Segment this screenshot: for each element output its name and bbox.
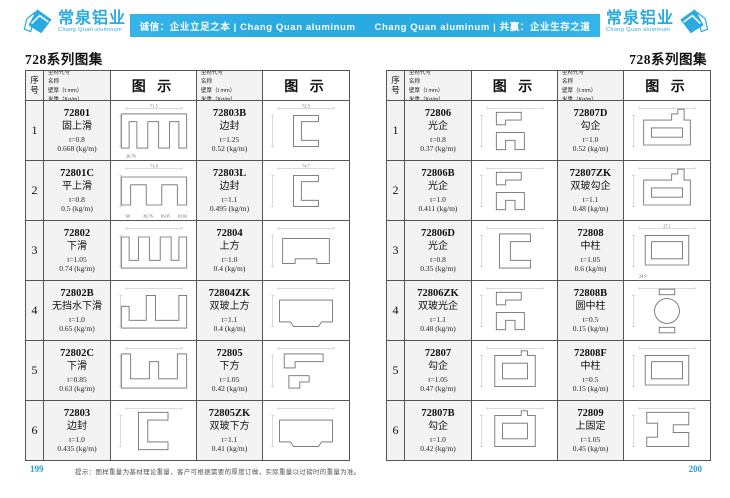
profile-code: 72806D xyxy=(421,227,455,240)
profile-thickness: t=1.0 xyxy=(222,255,238,264)
profile-code: 72802B xyxy=(60,287,93,300)
profile-thickness: t=1.1 xyxy=(222,435,238,444)
profile-thickness: t=0.5 xyxy=(583,315,599,324)
profile-diagram xyxy=(472,101,558,161)
svg-text:60: 60 xyxy=(126,213,130,218)
profile-thickness: t=1.1 xyxy=(222,315,238,324)
profile-code: 72805 xyxy=(216,347,242,360)
profile-spec: 72807ZK双玻勾企t=1.10.48 (kg/m) xyxy=(558,161,624,221)
profile-diagram xyxy=(263,401,350,461)
cross-section-icon: 74.7 xyxy=(266,163,346,219)
profile-diagram xyxy=(111,221,197,281)
profile-weight: 0.15 (kg/m) xyxy=(573,324,608,333)
svg-text:74.7: 74.7 xyxy=(302,163,310,168)
profile-thickness: t=1.1 xyxy=(222,195,238,204)
spec-header-line: 壁厚（t mm） xyxy=(48,86,82,94)
profile-name: 中柱 xyxy=(581,241,601,254)
cross-section-icon xyxy=(475,403,555,459)
profile-weight: 0.37 (kg/m) xyxy=(420,144,455,153)
profile-spec: 72808F中柱t=0.50.15 (kg/m) xyxy=(558,341,624,401)
profile-spec: 72802C下滑t=0.850.63 (kg/m) xyxy=(44,341,111,401)
profile-weight: 0.15 (kg/m) xyxy=(573,384,608,393)
profile-thickness: t=1.0 xyxy=(430,195,446,204)
profile-code: 72807D xyxy=(574,107,608,120)
profile-diagram xyxy=(472,221,558,281)
spec-header-line: 型材代号 xyxy=(48,71,70,76)
profile-weight: 0.65 (kg/m) xyxy=(59,324,94,333)
cross-section-icon xyxy=(266,223,346,279)
page-title-left: 728系列图集 xyxy=(25,48,103,68)
diamond-logo-icon xyxy=(22,6,54,38)
profile-spec: 72806B光企t=1.00.411 (kg/m) xyxy=(405,161,472,221)
cross-section-icon: 71.96026.7616.0510.03 xyxy=(114,163,194,219)
profile-thickness: t=1.0 xyxy=(430,435,446,444)
profile-spec: 72808B圆中柱t=0.50.15 (kg/m) xyxy=(558,281,624,341)
profile-weight: 0.4 (kg/m) xyxy=(214,324,246,333)
footer-note: 提示：图样重量为基材理论重量，客户可根据需要的厚度订做，实际重量以过磅时的重量为… xyxy=(75,466,361,476)
profile-code: 72801 xyxy=(64,107,90,120)
profile-name: 边封 xyxy=(220,121,240,134)
profile-name: 上方 xyxy=(220,241,240,254)
profile-name: 双玻上方 xyxy=(210,301,250,314)
profile-weight: 0.495 (kg/m) xyxy=(210,204,249,213)
profile-spec: 72803L边封t=1.10.495 (kg/m) xyxy=(197,161,263,221)
cross-section-icon xyxy=(627,343,707,399)
profile-code: 72801C xyxy=(60,167,94,180)
profile-weight: 0.4 (kg/m) xyxy=(214,264,246,273)
profile-weight: 0.42 (kg/m) xyxy=(420,444,455,453)
profile-weight: 0.411 (kg/m) xyxy=(419,204,458,213)
profile-name: 双玻下方 xyxy=(210,421,250,434)
profile-name: 无挡水下滑 xyxy=(52,301,102,314)
profile-name: 上固定 xyxy=(576,421,606,434)
svg-text:24.9: 24.9 xyxy=(639,273,646,278)
profile-name: 光企 xyxy=(428,241,448,254)
profile-spec: 72803边封t=1.00.435 (kg/m) xyxy=(44,401,111,461)
profile-diagram: 72.5 xyxy=(263,101,350,161)
cross-section-icon xyxy=(266,283,346,339)
profile-code: 72808 xyxy=(577,227,603,240)
profile-diagram xyxy=(472,281,558,341)
row-seq-number: 6 xyxy=(387,401,405,461)
column-header-figure: 图 示 xyxy=(624,71,711,101)
profile-code: 72809 xyxy=(577,407,603,420)
profile-weight: 0.435 (kg/m) xyxy=(57,444,96,453)
row-seq-number: 5 xyxy=(26,341,44,401)
profile-diagram xyxy=(472,401,558,461)
profile-diagram xyxy=(624,281,711,341)
profile-code: 72803L xyxy=(213,167,246,180)
profile-spec: 72802下滑t=1.050.74 (kg/m) xyxy=(44,221,111,281)
cross-section-icon xyxy=(114,403,194,459)
profile-spec: 72806ZK双玻光企t=1.10.48 (kg/m) xyxy=(405,281,472,341)
profile-code: 72804ZK xyxy=(209,287,250,300)
profile-code: 72802C xyxy=(60,347,94,360)
svg-text:72.5: 72.5 xyxy=(302,103,309,108)
profile-spec: 72805ZK双玻下方t=1.10.41 (kg/m) xyxy=(197,401,263,461)
svg-text:26.76: 26.76 xyxy=(126,153,136,158)
profile-weight: 0.668 (kg/m) xyxy=(57,144,96,153)
svg-text:71.5: 71.5 xyxy=(150,103,157,108)
svg-text:16.05: 16.05 xyxy=(160,213,170,218)
cross-section-icon xyxy=(266,403,346,459)
row-seq-number: 6 xyxy=(26,401,44,461)
profile-spec: 72802B无挡水下滑t=1.00.65 (kg/m) xyxy=(44,281,111,341)
cross-section-icon xyxy=(627,163,707,219)
spec-header-line: 型材代号 xyxy=(201,71,223,76)
column-header-spec: 型材代号 名称 壁厚（t mm） 米重（Kg/m） xyxy=(405,71,472,101)
row-seq-number: 5 xyxy=(387,341,405,401)
profile-name: 下滑 xyxy=(67,241,87,254)
column-header-figure: 图 示 xyxy=(111,71,197,101)
profile-diagram xyxy=(263,341,350,401)
profile-spec: 72807勾企t=1.050.47 (kg/m) xyxy=(405,341,472,401)
profile-code: 72807 xyxy=(425,347,451,360)
column-header-figure: 图 示 xyxy=(472,71,558,101)
company-name-en: Chang Quan aluminum xyxy=(606,28,674,34)
profile-weight: 0.63 (kg/m) xyxy=(59,384,94,393)
profile-thickness: t=1.05 xyxy=(67,255,86,264)
spec-header-line: 壁厚（t mm） xyxy=(409,86,443,94)
spec-header-line: 名称 xyxy=(48,77,59,85)
company-name: 常泉铝业 xyxy=(58,11,126,27)
profile-table-right: 序号 型材代号 名称 壁厚（t mm） 米重（Kg/m） 图 示 型材代号 名称… xyxy=(386,70,711,461)
profile-thickness: t=0.8 xyxy=(69,195,85,204)
row-seq-number: 3 xyxy=(387,221,405,281)
profile-diagram: 71.96026.7616.0510.03 xyxy=(111,161,197,221)
profile-thickness: t=0.8 xyxy=(430,135,446,144)
profile-code: 72807B xyxy=(421,407,454,420)
profile-weight: 0.35 (kg/m) xyxy=(420,264,455,273)
cross-section-icon xyxy=(475,223,555,279)
profile-name: 圆中柱 xyxy=(576,301,606,314)
page-number-left: 199 xyxy=(30,464,44,474)
profile-thickness: t=1.0 xyxy=(69,315,85,324)
cross-section-icon: 27.124.9 xyxy=(627,223,707,279)
profile-diagram xyxy=(111,281,197,341)
banner-slogan-left: 诚信：企业立足之本 | Chang Quan aluminum xyxy=(130,14,365,37)
profile-name: 勾企 xyxy=(428,421,448,434)
spec-header-line: 型材代号 xyxy=(409,71,431,76)
svg-text:10.03: 10.03 xyxy=(177,213,187,218)
svg-text:27.1: 27.1 xyxy=(663,223,670,228)
profile-thickness: t=1.25 xyxy=(220,135,239,144)
profile-name: 中柱 xyxy=(581,361,601,374)
profile-thickness: t=1.05 xyxy=(428,375,447,384)
profile-diagram xyxy=(111,341,197,401)
profile-weight: 0.48 (kg/m) xyxy=(420,324,455,333)
profile-thickness: t=1.1 xyxy=(430,315,446,324)
profile-name: 边封 xyxy=(220,181,240,194)
page-title-right: 728系列图集 xyxy=(629,48,707,68)
profile-weight: 0.5 (kg/m) xyxy=(61,204,93,213)
row-seq-number: 1 xyxy=(387,101,405,161)
cross-section-icon xyxy=(475,103,555,159)
spec-header-line: 型材代号 xyxy=(562,71,584,76)
profile-thickness: t=0.8 xyxy=(69,135,85,144)
profile-code: 72803 xyxy=(64,407,90,420)
profile-thickness: t=0.5 xyxy=(583,375,599,384)
row-seq-number: 4 xyxy=(26,281,44,341)
profile-name: 下方 xyxy=(220,361,240,374)
profile-spec: 72809上固定t=1.050.45 (kg/m) xyxy=(558,401,624,461)
cross-section-icon xyxy=(627,103,707,159)
cross-section-icon xyxy=(627,283,707,339)
profile-name: 双玻勾企 xyxy=(571,181,611,194)
cross-section-icon xyxy=(114,223,194,279)
profile-code: 72806B xyxy=(421,167,454,180)
profile-code: 72807ZK xyxy=(570,167,611,180)
profile-code: 72805ZK xyxy=(209,407,250,420)
profile-code: 72804 xyxy=(216,227,242,240)
svg-text:71.9: 71.9 xyxy=(150,163,157,168)
svg-text:26.76: 26.76 xyxy=(143,213,153,218)
profile-diagram xyxy=(624,401,711,461)
profile-spec: 72807D勾企t=1.00.52 (kg/m) xyxy=(558,101,624,161)
profile-code: 72803B xyxy=(213,107,246,120)
profile-thickness: t=1.05 xyxy=(581,255,600,264)
profile-thickness: t=0.85 xyxy=(67,375,86,384)
profile-name: 固上滑 xyxy=(62,121,92,134)
profile-diagram: 74.7 xyxy=(263,161,350,221)
row-seq-number: 3 xyxy=(26,221,44,281)
profile-diagram xyxy=(624,101,711,161)
profile-spec: 72806D光企t=0.80.35 (kg/m) xyxy=(405,221,472,281)
profile-diagram xyxy=(263,221,350,281)
profile-table-left: 序号 型材代号 名称 壁厚（t mm） 米重（Kg/m） 图 示 型材代号 名称… xyxy=(25,70,350,461)
profile-name: 下滑 xyxy=(67,361,87,374)
profile-weight: 0.74 (kg/m) xyxy=(59,264,94,273)
profile-diagram xyxy=(111,401,197,461)
profile-weight: 0.42 (kg/m) xyxy=(212,384,247,393)
company-logo: 常泉铝业 Chang Quan aluminum xyxy=(606,6,710,38)
profile-name: 勾企 xyxy=(581,121,601,134)
profile-spec: 72804ZK双玻上方t=1.10.4 (kg/m) xyxy=(197,281,263,341)
banner-slogan-right: Chang Quan aluminum | 共赢：企业生存之道 xyxy=(365,14,600,37)
profile-weight: 0.52 (kg/m) xyxy=(573,144,608,153)
profile-diagram xyxy=(472,161,558,221)
profile-name: 边封 xyxy=(67,421,87,434)
cross-section-icon xyxy=(114,283,194,339)
profile-diagram xyxy=(263,281,350,341)
row-seq-number: 2 xyxy=(26,161,44,221)
company-name: 常泉铝业 xyxy=(606,11,674,27)
spec-header-line: 名称 xyxy=(409,77,420,85)
profile-thickness: t=0.8 xyxy=(430,255,446,264)
cross-section-icon xyxy=(627,403,707,459)
profile-thickness: t=1.1 xyxy=(583,195,599,204)
profile-diagram: 71.526.76 xyxy=(111,101,197,161)
spec-header-line: 壁厚（t mm） xyxy=(201,86,235,94)
profile-weight: 0.45 (kg/m) xyxy=(573,444,608,453)
profile-thickness: t=1.05 xyxy=(220,375,239,384)
profile-weight: 0.47 (kg/m) xyxy=(420,384,455,393)
page-number-right: 200 xyxy=(689,464,703,474)
profile-thickness: t=1.05 xyxy=(581,435,600,444)
column-header-spec: 型材代号 名称 壁厚（t mm） 米重（Kg/m） xyxy=(558,71,624,101)
column-header-spec: 型材代号 名称 壁厚（t mm） 米重（Kg/m） xyxy=(44,71,111,101)
profile-diagram xyxy=(624,161,711,221)
profile-spec: 72804上方t=1.00.4 (kg/m) xyxy=(197,221,263,281)
company-logo: 常泉铝业 Chang Quan aluminum xyxy=(22,6,126,38)
profile-weight: 0.48 (kg/m) xyxy=(573,204,608,213)
profile-spec: 72808中柱t=1.050.6 (kg/m) xyxy=(558,221,624,281)
spec-header-line: 名称 xyxy=(201,77,212,85)
column-header-seq: 序号 xyxy=(26,71,44,101)
profile-thickness: t=1.0 xyxy=(69,435,85,444)
profile-name: 勾企 xyxy=(428,361,448,374)
profile-diagram xyxy=(624,341,711,401)
profile-diagram xyxy=(472,341,558,401)
spec-header-line: 名称 xyxy=(562,77,573,85)
profile-thickness: t=1.0 xyxy=(583,135,599,144)
cross-section-icon xyxy=(475,343,555,399)
row-seq-number: 2 xyxy=(387,161,405,221)
cross-section-icon xyxy=(114,343,194,399)
profile-weight: 0.52 (kg/m) xyxy=(212,144,247,153)
profile-spec: 72805下方t=1.050.42 (kg/m) xyxy=(197,341,263,401)
cross-section-icon xyxy=(266,343,346,399)
profile-name: 平上滑 xyxy=(62,181,92,194)
profile-name: 光企 xyxy=(428,121,448,134)
profile-code: 72806 xyxy=(425,107,451,120)
column-header-seq: 序号 xyxy=(387,71,405,101)
profile-spec: 72803B边封t=1.250.52 (kg/m) xyxy=(197,101,263,161)
spec-header-line: 壁厚（t mm） xyxy=(562,86,596,94)
cross-section-icon: 72.5 xyxy=(266,103,346,159)
column-header-spec: 型材代号 名称 壁厚（t mm） 米重（Kg/m） xyxy=(197,71,263,101)
cross-section-icon xyxy=(475,163,555,219)
row-seq-number: 1 xyxy=(26,101,44,161)
profile-spec: 72801固上滑t=0.80.668 (kg/m) xyxy=(44,101,111,161)
profile-code: 72808B xyxy=(574,287,607,300)
cross-section-icon xyxy=(475,283,555,339)
profile-weight: 0.6 (kg/m) xyxy=(575,264,607,273)
profile-diagram: 27.124.9 xyxy=(624,221,711,281)
profile-code: 72806ZK xyxy=(417,287,458,300)
company-name-en: Chang Quan aluminum xyxy=(58,28,126,34)
profile-code: 72802 xyxy=(64,227,90,240)
column-header-figure: 图 示 xyxy=(263,71,350,101)
profile-spec: 72807B勾企t=1.00.42 (kg/m) xyxy=(405,401,472,461)
profile-code: 72808F xyxy=(574,347,607,360)
profile-spec: 72801C平上滑t=0.80.5 (kg/m) xyxy=(44,161,111,221)
profile-name: 双玻光企 xyxy=(418,301,458,314)
profile-spec: 72806光企t=0.80.37 (kg/m) xyxy=(405,101,472,161)
row-seq-number: 4 xyxy=(387,281,405,341)
profile-name: 光企 xyxy=(428,181,448,194)
header-banner: 诚信：企业立足之本 | Chang Quan aluminum Chang Qu… xyxy=(130,14,600,37)
diamond-logo-icon xyxy=(678,6,710,38)
cross-section-icon: 71.526.76 xyxy=(114,103,194,159)
profile-weight: 0.41 (kg/m) xyxy=(212,444,247,453)
